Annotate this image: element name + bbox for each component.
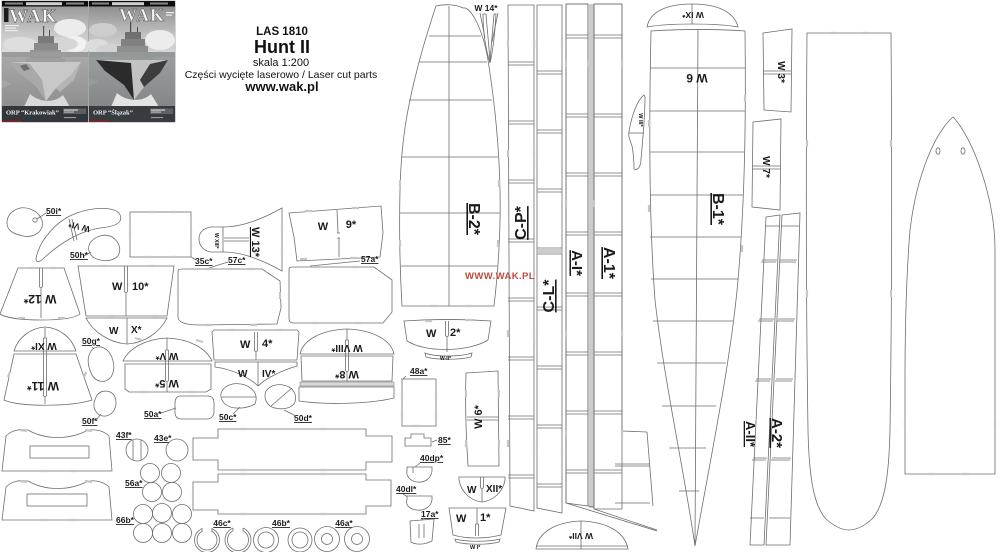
svg-text:46b*: 46b* (272, 518, 291, 528)
svg-text:WAK: WAK (9, 6, 57, 27)
svg-text:B-2*: B-2* (465, 203, 482, 236)
svg-text:Hunt II: Hunt II (254, 37, 310, 57)
svg-text:W: W (456, 513, 467, 525)
svg-text:A-I*: A-I* (568, 250, 585, 276)
svg-text:C-L*: C-L* (541, 279, 558, 313)
svg-text:B-1*: B-1* (709, 193, 726, 226)
svg-text:W V*: W V* (156, 350, 179, 361)
svg-text:46a*: 46a* (335, 518, 353, 528)
svg-text:W I*: W I* (470, 545, 481, 551)
svg-text:57a*: 57a* (361, 254, 379, 264)
svg-text:W: W (109, 326, 119, 337)
svg-text:46c*: 46c* (213, 518, 231, 528)
svg-text:XII*: XII* (486, 484, 502, 495)
svg-text:C-P*: C-P* (513, 205, 530, 240)
svg-text:2*: 2* (450, 327, 461, 339)
svg-text:IV*: IV* (262, 369, 275, 380)
svg-text:57c*: 57c* (228, 255, 246, 265)
svg-text:W VII*: W VII* (568, 531, 593, 541)
svg-text:W-II*: W-II* (440, 356, 451, 362)
svg-text:50g*: 50g* (82, 336, 101, 346)
svg-text:ORP “Krakowiak”: ORP “Krakowiak” (6, 110, 59, 117)
svg-text:WWW.WAK.PL: WWW.WAK.PL (465, 271, 535, 282)
svg-text:40dp*: 40dp* (420, 453, 444, 463)
svg-text:A-1*: A-1* (600, 247, 617, 280)
svg-text:17a*: 17a* (421, 509, 439, 519)
svg-text:W: W (238, 369, 248, 380)
svg-text:W 12*: W 12* (23, 292, 56, 306)
svg-text:W: W (112, 281, 123, 293)
svg-text:W: W (426, 328, 437, 340)
svg-text:10*: 10* (132, 281, 149, 293)
svg-text:1*: 1* (480, 512, 491, 524)
svg-text:50f*: 50f* (82, 416, 98, 426)
svg-text:A-II*: A-II* (743, 421, 758, 448)
svg-text:56a*: 56a* (125, 478, 143, 488)
svg-text:85*: 85* (438, 435, 451, 445)
svg-text:W XIII*: W XIII* (213, 233, 219, 249)
svg-text:W 6: W 6 (686, 71, 708, 85)
svg-text:W 6*: W 6* (473, 404, 485, 429)
svg-text:W: W (240, 339, 251, 351)
svg-text:W 3*: W 3* (775, 61, 786, 83)
svg-text:40dl*: 40dl* (396, 484, 417, 494)
svg-text:ORP “Ślązak”: ORP “Ślązak” (93, 109, 133, 117)
svg-text:W III*: W III* (637, 113, 643, 127)
svg-text:A-2*: A-2* (768, 418, 785, 448)
svg-text:W 11*: W 11* (27, 379, 59, 393)
svg-text:50i*: 50i* (46, 206, 62, 216)
svg-text:50c*: 50c* (219, 412, 237, 422)
svg-text:35c*: 35c* (195, 256, 213, 266)
svg-text:9*: 9* (346, 219, 357, 231)
svg-text:W IX*: W IX* (681, 10, 703, 20)
svg-text:W 5*: W 5* (154, 377, 179, 389)
svg-text:www.wak.pl: www.wak.pl (244, 79, 318, 94)
svg-text:WAK: WAK (119, 5, 165, 25)
svg-text:W VIII*: W VIII* (331, 342, 362, 353)
svg-text:W: W (318, 221, 329, 233)
svg-text:W: W (467, 485, 477, 496)
svg-text:W 7*: W 7* (760, 156, 771, 178)
svg-text:48a*: 48a* (410, 366, 428, 376)
svg-text:skala 1:200: skala 1:200 (253, 57, 309, 69)
svg-text:W 13*: W 13* (249, 227, 261, 258)
svg-text:W XI*: W XI* (31, 340, 57, 351)
svg-text:66b*: 66b* (116, 515, 135, 525)
svg-text:43f*: 43f* (116, 430, 132, 440)
svg-text:W 14*: W 14* (474, 3, 498, 13)
svg-text:50a*: 50a* (144, 409, 162, 419)
svg-text:4*: 4* (262, 338, 273, 350)
svg-text:50d*: 50d* (294, 413, 313, 423)
svg-text:W 8*: W 8* (334, 368, 359, 380)
svg-text:X*: X* (131, 325, 142, 336)
